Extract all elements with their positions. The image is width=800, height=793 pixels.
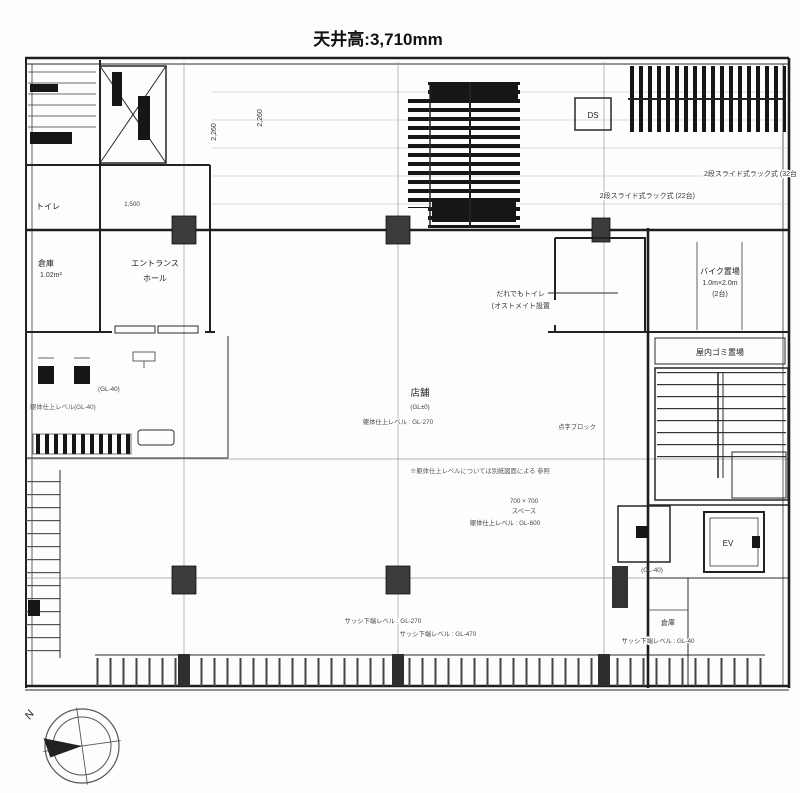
elevator-shaft-block [100, 66, 166, 163]
fixture-1 [38, 366, 54, 384]
floor-plan-drawing: 天井高:3,710mm [0, 0, 800, 793]
ds-label: DS [587, 111, 598, 120]
dimension-1500: 1,500 [124, 201, 140, 208]
storage-small-label: 倉庫 [661, 618, 675, 627]
fixture-2 [74, 366, 90, 384]
sink-symbol [133, 352, 155, 361]
space-label: スペース [512, 507, 536, 515]
table-symbol [138, 430, 174, 445]
left-louver-column [28, 72, 96, 144]
north-label: N [23, 708, 37, 721]
space-dimension-label: 700 × 700 [510, 498, 539, 505]
dimension-2260-b: 2,260 [257, 109, 264, 127]
bike-parking-label-3: (2台) [712, 289, 728, 298]
compass: N [23, 702, 126, 790]
sash-level-270-label: サッシ下端レベル : GL-270 [345, 616, 422, 625]
shop-slab-level-label: 躯体仕上レベル : GL-270 [363, 417, 434, 426]
accessible-toilet-label-1: だれでもトイレ [496, 290, 545, 298]
lower-left-room [33, 352, 174, 454]
space-slab-level-label: 躯体仕上レベル : GL-600 [470, 518, 541, 527]
gl-40-label: (GL-40) [641, 567, 663, 574]
staircase [655, 368, 788, 500]
sash-level-40-label: サッシ下端レベル : GL-40 [621, 636, 695, 645]
accessible-toilet-room [548, 238, 645, 332]
elevator [704, 512, 764, 572]
floor-plan-page: 天井高:3,710mm [0, 0, 800, 793]
dimension-2260-a: 2,260 [211, 123, 218, 141]
gl-40-label-b: (GL-40) [98, 386, 120, 393]
toilet-label: トイレ [36, 202, 60, 211]
storefront-mullions [95, 654, 765, 686]
slab-note-label: ※躯体仕上レベルについては別紙図面による 参照 [410, 466, 550, 475]
sash-level-470-label: サッシ下端レベル : GL-470 [400, 629, 477, 638]
entrance-label-2: ホール [143, 274, 167, 283]
rack-label-22: 2段スライド式ラック式 (22台) [600, 191, 695, 200]
left-side-louvers [26, 470, 60, 658]
pipe-shaft [612, 506, 670, 608]
braille-block-label: 点字ブロック [558, 422, 596, 431]
bike-parking-label-2: 1.0m×2.0m [702, 280, 737, 287]
accessible-toilet-label-2: (オストメイト設置 [492, 301, 550, 310]
compass-needle [44, 733, 83, 758]
structural-columns [172, 216, 610, 594]
elevator-label: EV [723, 539, 734, 548]
indoor-trash-label: 屋内ゴミ置場 [696, 347, 744, 357]
entrance-label-1: エントランス [131, 259, 179, 268]
storage-label: 倉庫 [38, 258, 54, 268]
rack-label-32: 2段スライド式ラック式 (32台 [704, 169, 797, 178]
ceiling-height-title: 天井高:3,710mm [313, 29, 442, 49]
shop-gl-label: (GL±0) [410, 404, 430, 411]
storage-area-label: 1.02m² [40, 272, 62, 279]
bicycle-rack-top-right [628, 66, 786, 132]
shop-label: 店舗 [410, 387, 430, 399]
bike-parking-label-1: バイク置場 [700, 266, 740, 276]
bench-rack [33, 434, 131, 454]
fixture-level-note: 躯体仕上レベル(GL-40) [30, 402, 96, 411]
entrance-sliding-door [115, 326, 198, 333]
bicycle-rack-center [408, 82, 520, 228]
